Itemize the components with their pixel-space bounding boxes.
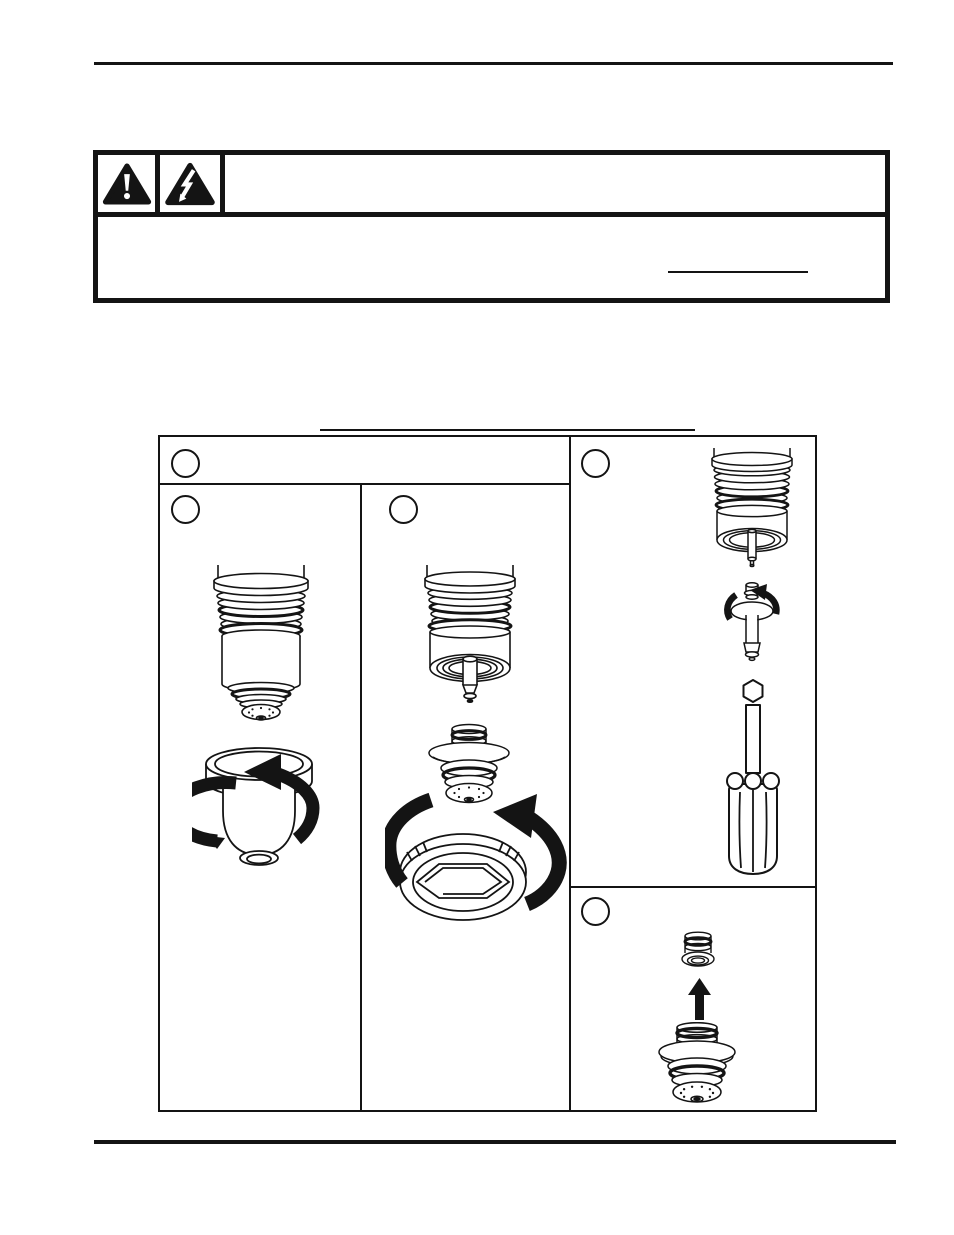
- warning-body: [98, 217, 885, 298]
- screwdriver-illustration: [726, 678, 780, 875]
- figure-divider-right-panels: [571, 886, 815, 888]
- callout-circle-panel-right-bottom: [581, 897, 610, 926]
- electrode-rotation-illustration: [714, 581, 780, 664]
- retaining-cap-underside-rotation-illustration: [385, 786, 571, 925]
- bottom-rule: [94, 1140, 896, 1144]
- retaining-cap-rotation-illustration: [192, 739, 327, 893]
- page: [0, 0, 954, 1235]
- figure-divider-left-middle: [360, 483, 362, 1110]
- torch-short-illustration: [706, 448, 798, 572]
- lightning-triangle-icon: [164, 162, 216, 206]
- callout-circle-header: [171, 449, 200, 478]
- top-rule: [94, 62, 893, 65]
- warning-header-space: [225, 155, 885, 212]
- warning-panel: [93, 150, 890, 303]
- warning-icon-cell-2: [160, 155, 225, 212]
- blank-answer-line: [668, 271, 808, 273]
- figure-divider-right-column: [569, 437, 571, 1110]
- shield-assembly-illustration: [657, 1022, 738, 1111]
- callout-circle-panel-middle: [389, 495, 418, 524]
- torch-with-shield-illustration: [208, 565, 314, 729]
- callout-circle-panel-left: [171, 495, 200, 524]
- nozzle-small-illustration: [678, 931, 718, 970]
- callout-circle-panel-right-top: [581, 449, 610, 478]
- warning-icon-cell-1: [98, 155, 160, 212]
- warning-header-row: [98, 155, 885, 217]
- torch-open-end-illustration: [419, 565, 521, 710]
- exclamation-triangle-icon: [102, 162, 152, 206]
- up-arrow-icon: [687, 978, 712, 1020]
- figure-top-edge-artifact: [320, 429, 695, 431]
- figure-header-divider: [160, 483, 571, 485]
